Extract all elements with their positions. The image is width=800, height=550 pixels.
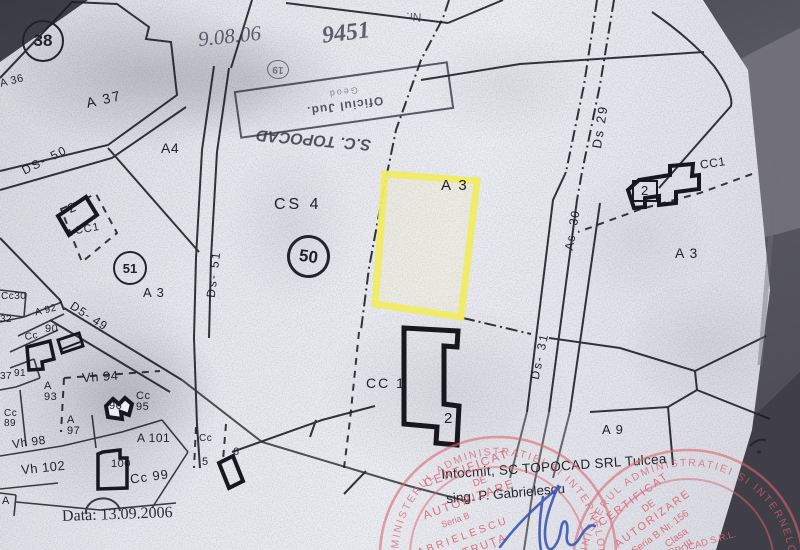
scanned-cadastral-map-photo: 9.08.06 9451 19 Nr. Oficiul Jud. Geod S.… [0,0,800,550]
signature [0,0,800,550]
